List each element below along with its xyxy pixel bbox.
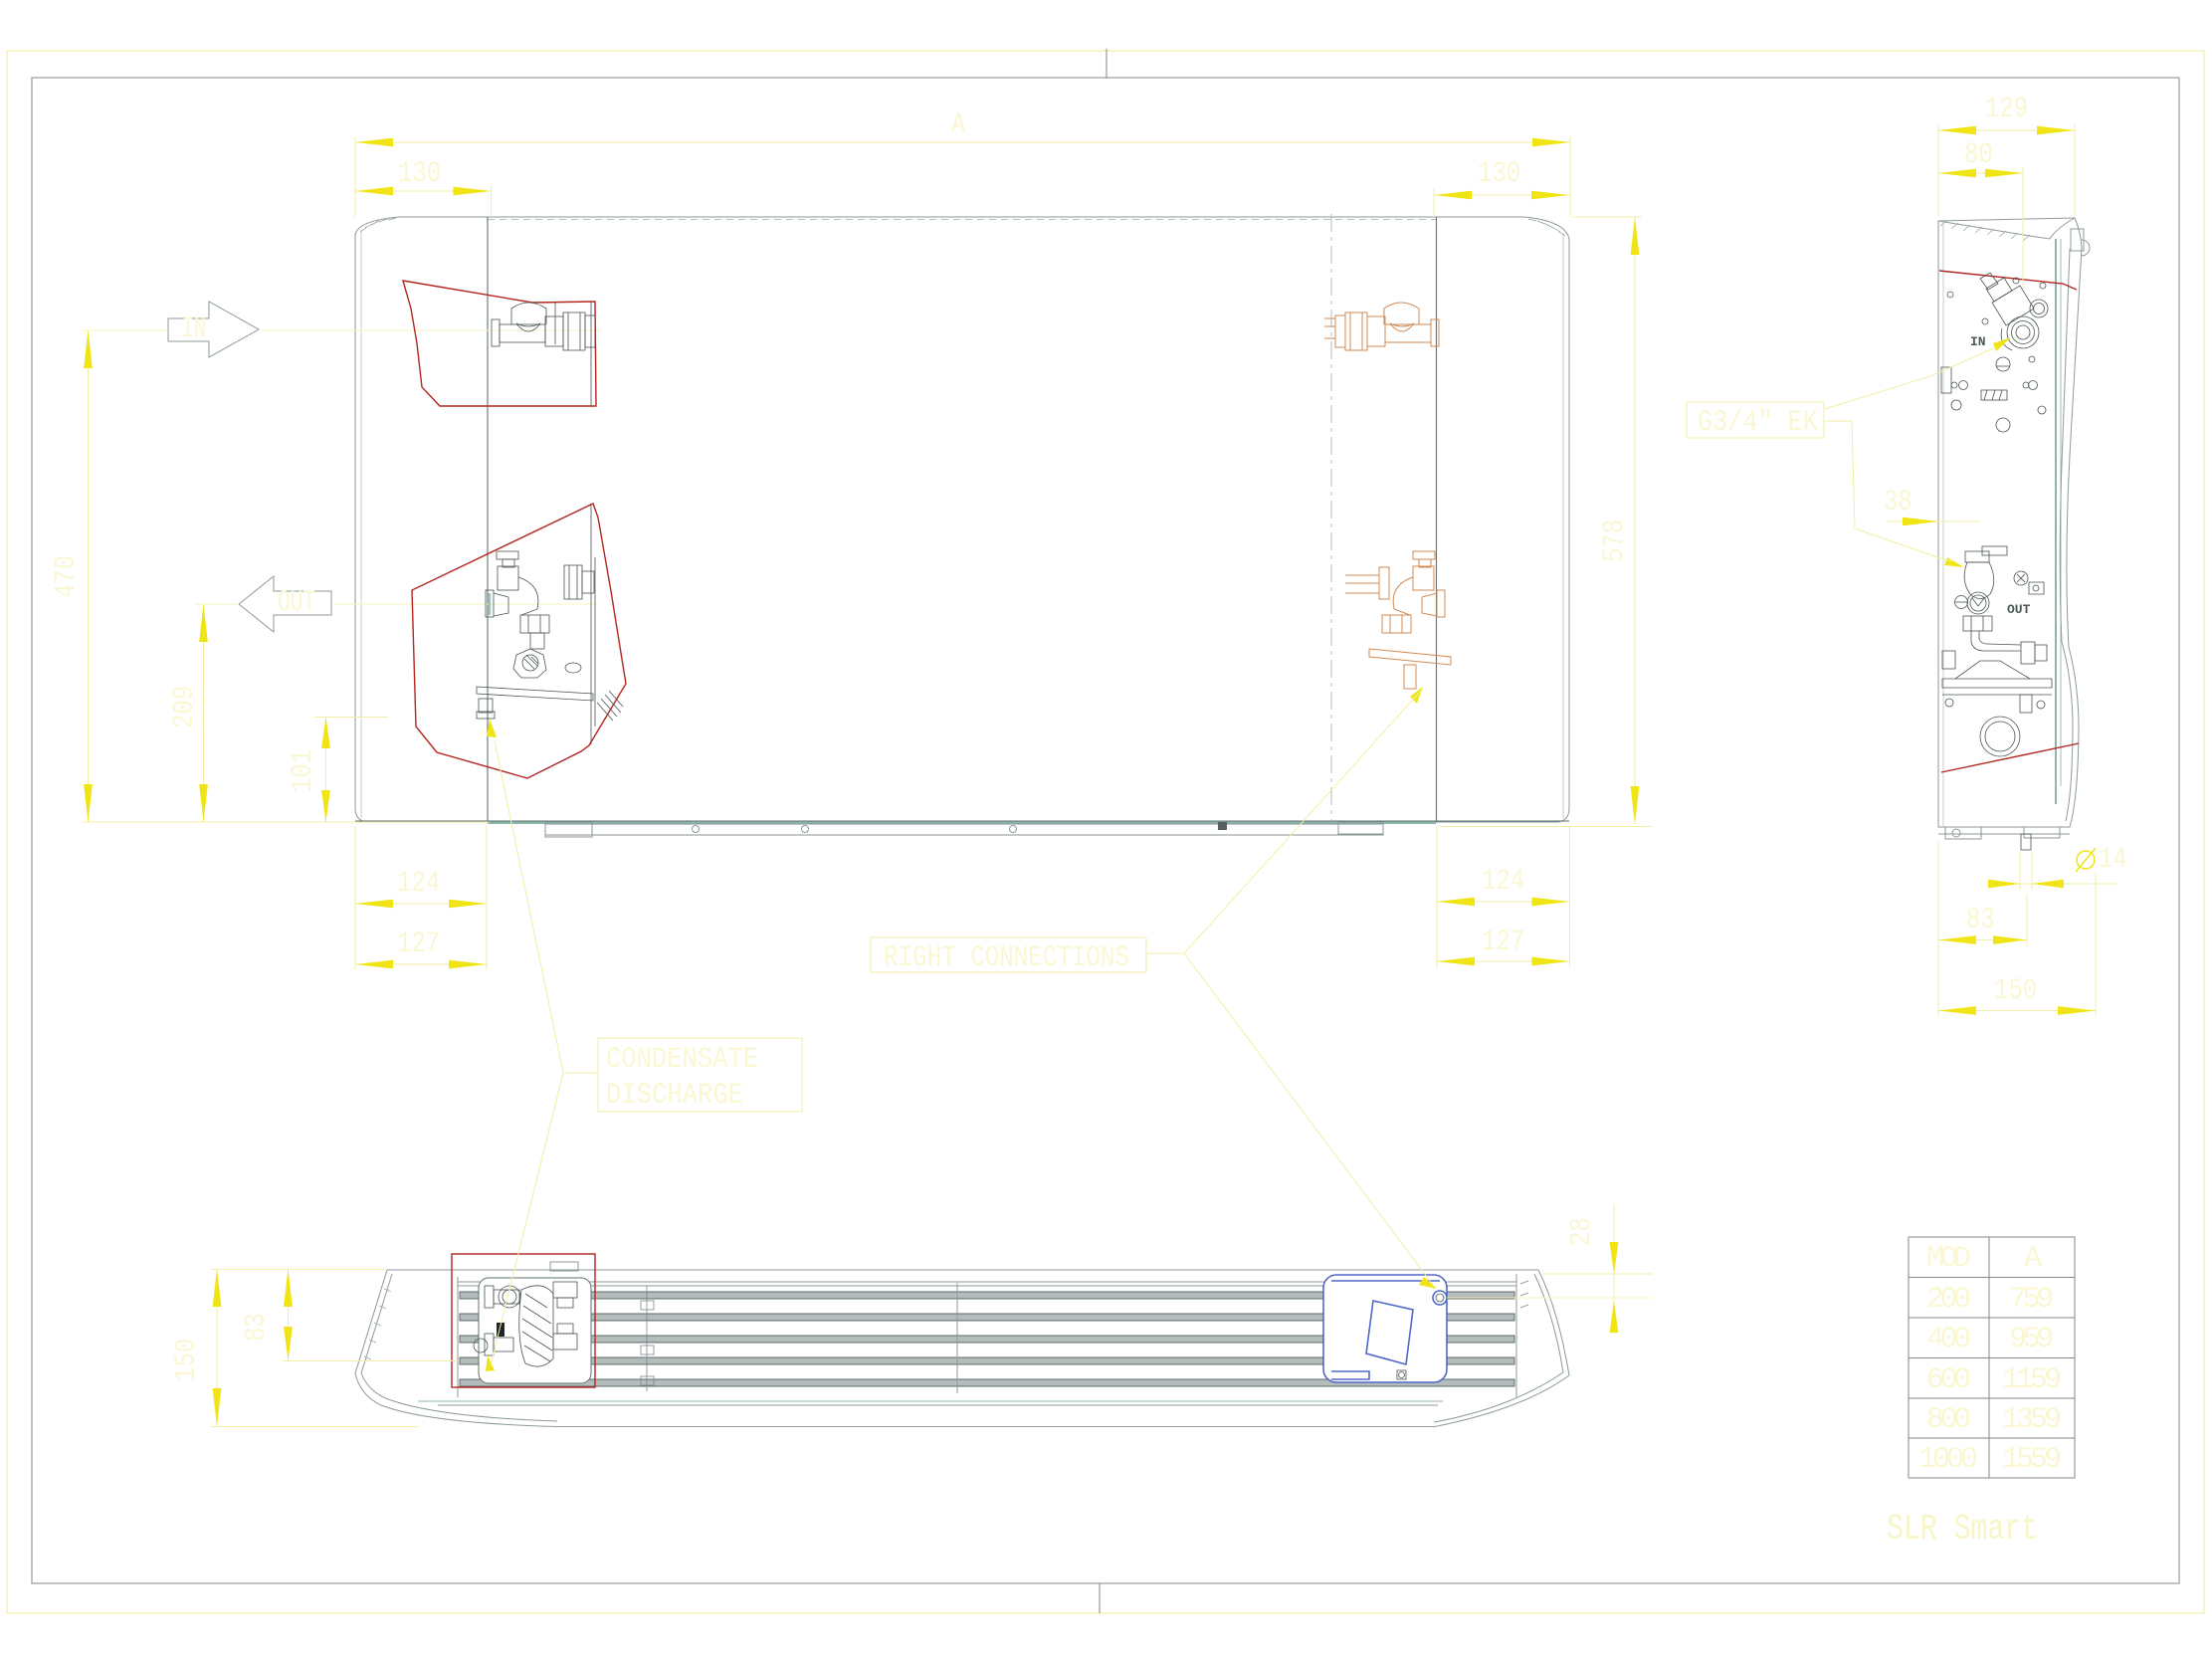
svg-text:SLR Smart: SLR Smart [1887, 1509, 2038, 1550]
svg-text:959: 959 [2009, 1323, 2054, 1356]
svg-text:129: 129 [1985, 93, 2028, 126]
svg-text:1559: 1559 [2002, 1443, 2062, 1477]
svg-text:127: 127 [397, 928, 440, 961]
svg-text:1000: 1000 [1918, 1443, 1978, 1477]
svg-text:DISCHARGE: DISCHARGE [606, 1079, 743, 1113]
svg-text:MOD: MOD [1926, 1242, 1971, 1276]
svg-text:IN: IN [182, 312, 206, 346]
svg-text:28: 28 [1565, 1217, 1599, 1246]
svg-text:130: 130 [398, 157, 441, 191]
svg-text:400: 400 [1926, 1323, 1971, 1356]
svg-text:124: 124 [397, 867, 440, 901]
svg-text:A: A [2024, 1242, 2042, 1276]
svg-text:80: 80 [1964, 138, 1993, 172]
svg-text:200: 200 [1926, 1283, 1971, 1317]
svg-text:759: 759 [2009, 1283, 2054, 1317]
svg-text:G3/4" EK: G3/4" EK [1698, 406, 1818, 440]
svg-text:130: 130 [1478, 157, 1520, 191]
svg-text:A: A [951, 108, 965, 142]
svg-text:150: 150 [170, 1339, 204, 1381]
svg-text:14: 14 [2099, 843, 2127, 877]
svg-text:124: 124 [1482, 865, 1524, 899]
svg-text:127: 127 [1482, 926, 1524, 959]
svg-text:209: 209 [168, 686, 202, 728]
svg-text:150: 150 [1994, 974, 2037, 1008]
svg-text:800: 800 [1926, 1403, 1971, 1437]
svg-text:470: 470 [50, 555, 84, 598]
svg-text:OUT: OUT [278, 586, 315, 620]
svg-text:83: 83 [1966, 904, 1995, 937]
svg-text:1159: 1159 [2002, 1363, 2062, 1397]
svg-text:1359: 1359 [2002, 1403, 2062, 1437]
svg-text:600: 600 [1926, 1363, 1971, 1397]
svg-text:38: 38 [1884, 486, 1912, 519]
svg-text:578: 578 [1598, 519, 1632, 562]
svg-text:83: 83 [240, 1313, 274, 1342]
svg-text:101: 101 [287, 749, 320, 792]
svg-text:OUT: OUT [2007, 602, 2031, 617]
svg-text:IN: IN [1970, 334, 1986, 349]
svg-text:CONDENSATE: CONDENSATE [606, 1043, 758, 1077]
svg-text:RIGHT CONNECTIONS: RIGHT CONNECTIONS [884, 941, 1129, 975]
